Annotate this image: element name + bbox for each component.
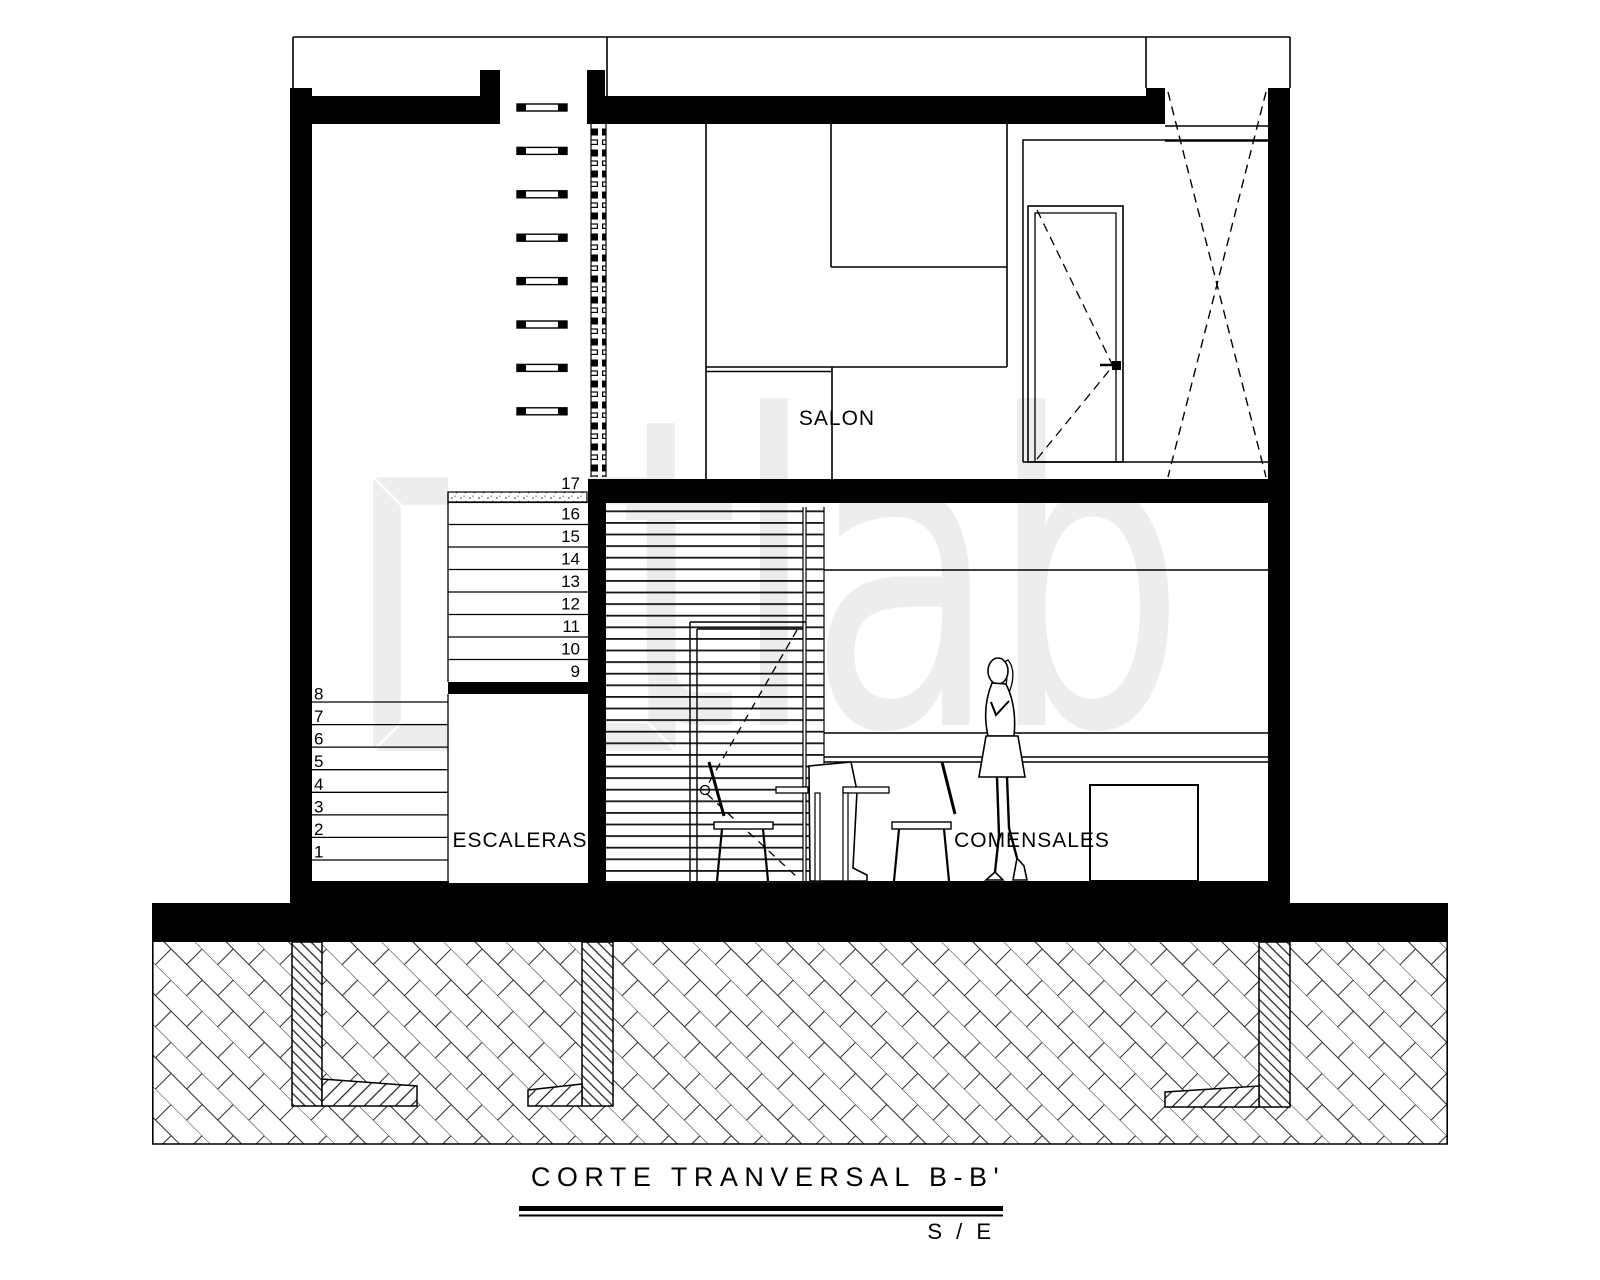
stair-landing-slab xyxy=(448,682,606,694)
landing-screed xyxy=(448,492,587,503)
pier-right xyxy=(1259,942,1290,1107)
person-leg xyxy=(995,777,999,872)
shaft-jamb-left xyxy=(480,70,500,124)
mid-floor-slab xyxy=(588,479,1290,503)
stair-number: 8 xyxy=(314,685,323,704)
stair-number: 7 xyxy=(314,707,323,726)
louver-end-cap xyxy=(558,321,567,328)
stair-number: 2 xyxy=(314,820,323,839)
stair-number: 10 xyxy=(561,640,580,659)
room-label-salon: SALON xyxy=(757,407,917,431)
louver-end-cap xyxy=(517,147,526,154)
salon-door xyxy=(1028,206,1123,462)
stairs-upper-flight xyxy=(448,474,606,694)
stair-number: 14 xyxy=(561,550,580,569)
table-leg xyxy=(815,793,820,881)
shaft-ladder xyxy=(591,124,606,477)
drawing-scale: S / E xyxy=(845,1221,995,1243)
louver-end-cap xyxy=(558,408,567,415)
parapet-outline xyxy=(293,37,1290,96)
roof-stub xyxy=(1146,88,1165,124)
louver-end-cap xyxy=(517,408,526,415)
stair-number: 6 xyxy=(314,730,323,749)
stair-number: 9 xyxy=(571,662,580,681)
louver-end-cap xyxy=(558,191,567,198)
wall-left xyxy=(290,88,312,883)
stair-number: 3 xyxy=(314,797,323,816)
louver-end-cap xyxy=(558,364,567,371)
person-foot xyxy=(1013,858,1027,880)
louver-end-cap xyxy=(517,234,526,241)
stair-number: 17 xyxy=(561,474,580,493)
pier-left xyxy=(292,942,322,1106)
stair-number: 12 xyxy=(561,595,580,614)
louver-end-cap xyxy=(558,234,567,241)
table-leg xyxy=(843,793,848,881)
ground-slab xyxy=(152,903,1448,942)
stair-number: 5 xyxy=(314,752,323,771)
architectural-sheet: tlab xyxy=(0,0,1600,1280)
person-foot xyxy=(986,872,1003,880)
stair-number: 16 xyxy=(561,505,580,524)
louver-end-cap xyxy=(558,147,567,154)
stair-wall xyxy=(588,479,606,883)
louver-end-cap xyxy=(517,278,526,285)
room-label-comensales: COMENSALES xyxy=(952,829,1112,853)
title-rule-thin xyxy=(519,1215,1003,1217)
roof-slab-right xyxy=(605,96,1146,124)
wardrobe-cross xyxy=(1168,92,1266,477)
drawing-title: CORTE TRANVERSAL B-B' xyxy=(468,1163,1068,1193)
pier-middle xyxy=(582,942,613,1106)
shaft-louvers xyxy=(517,104,567,415)
closet-outline xyxy=(1023,126,1268,462)
table-top xyxy=(776,787,808,793)
stair-number: 11 xyxy=(562,617,580,636)
louver-end-cap xyxy=(558,278,567,285)
section-line-drawing: 1716151413121110987654321 xyxy=(0,0,1600,1280)
shaft-jamb-right xyxy=(587,70,605,124)
louver-end-cap xyxy=(517,364,526,371)
stairs-lower-flight xyxy=(310,694,588,883)
ground-slab-step xyxy=(290,881,1290,903)
door-handle xyxy=(1112,361,1121,370)
room-label-escaleras: ESCALERAS xyxy=(440,829,600,853)
stair-number: 13 xyxy=(561,572,580,591)
roof-slab-left xyxy=(290,96,480,124)
chair-seat xyxy=(714,822,773,829)
dining-room-lines xyxy=(824,570,1268,762)
stair-number: 15 xyxy=(561,527,580,546)
chair-seat xyxy=(892,822,951,829)
table-top xyxy=(843,787,889,793)
louver-end-cap xyxy=(517,104,526,111)
person-head xyxy=(988,658,1008,684)
title-rule-thick xyxy=(519,1206,1003,1211)
foundation-soil xyxy=(152,942,1448,1144)
chair-back xyxy=(942,762,955,814)
stair-number: 1 xyxy=(314,842,323,861)
person-skirt xyxy=(979,736,1025,777)
louver-end-cap xyxy=(558,104,567,111)
stair-number: 4 xyxy=(314,775,323,794)
louver-end-cap xyxy=(517,191,526,198)
louver-end-cap xyxy=(517,321,526,328)
